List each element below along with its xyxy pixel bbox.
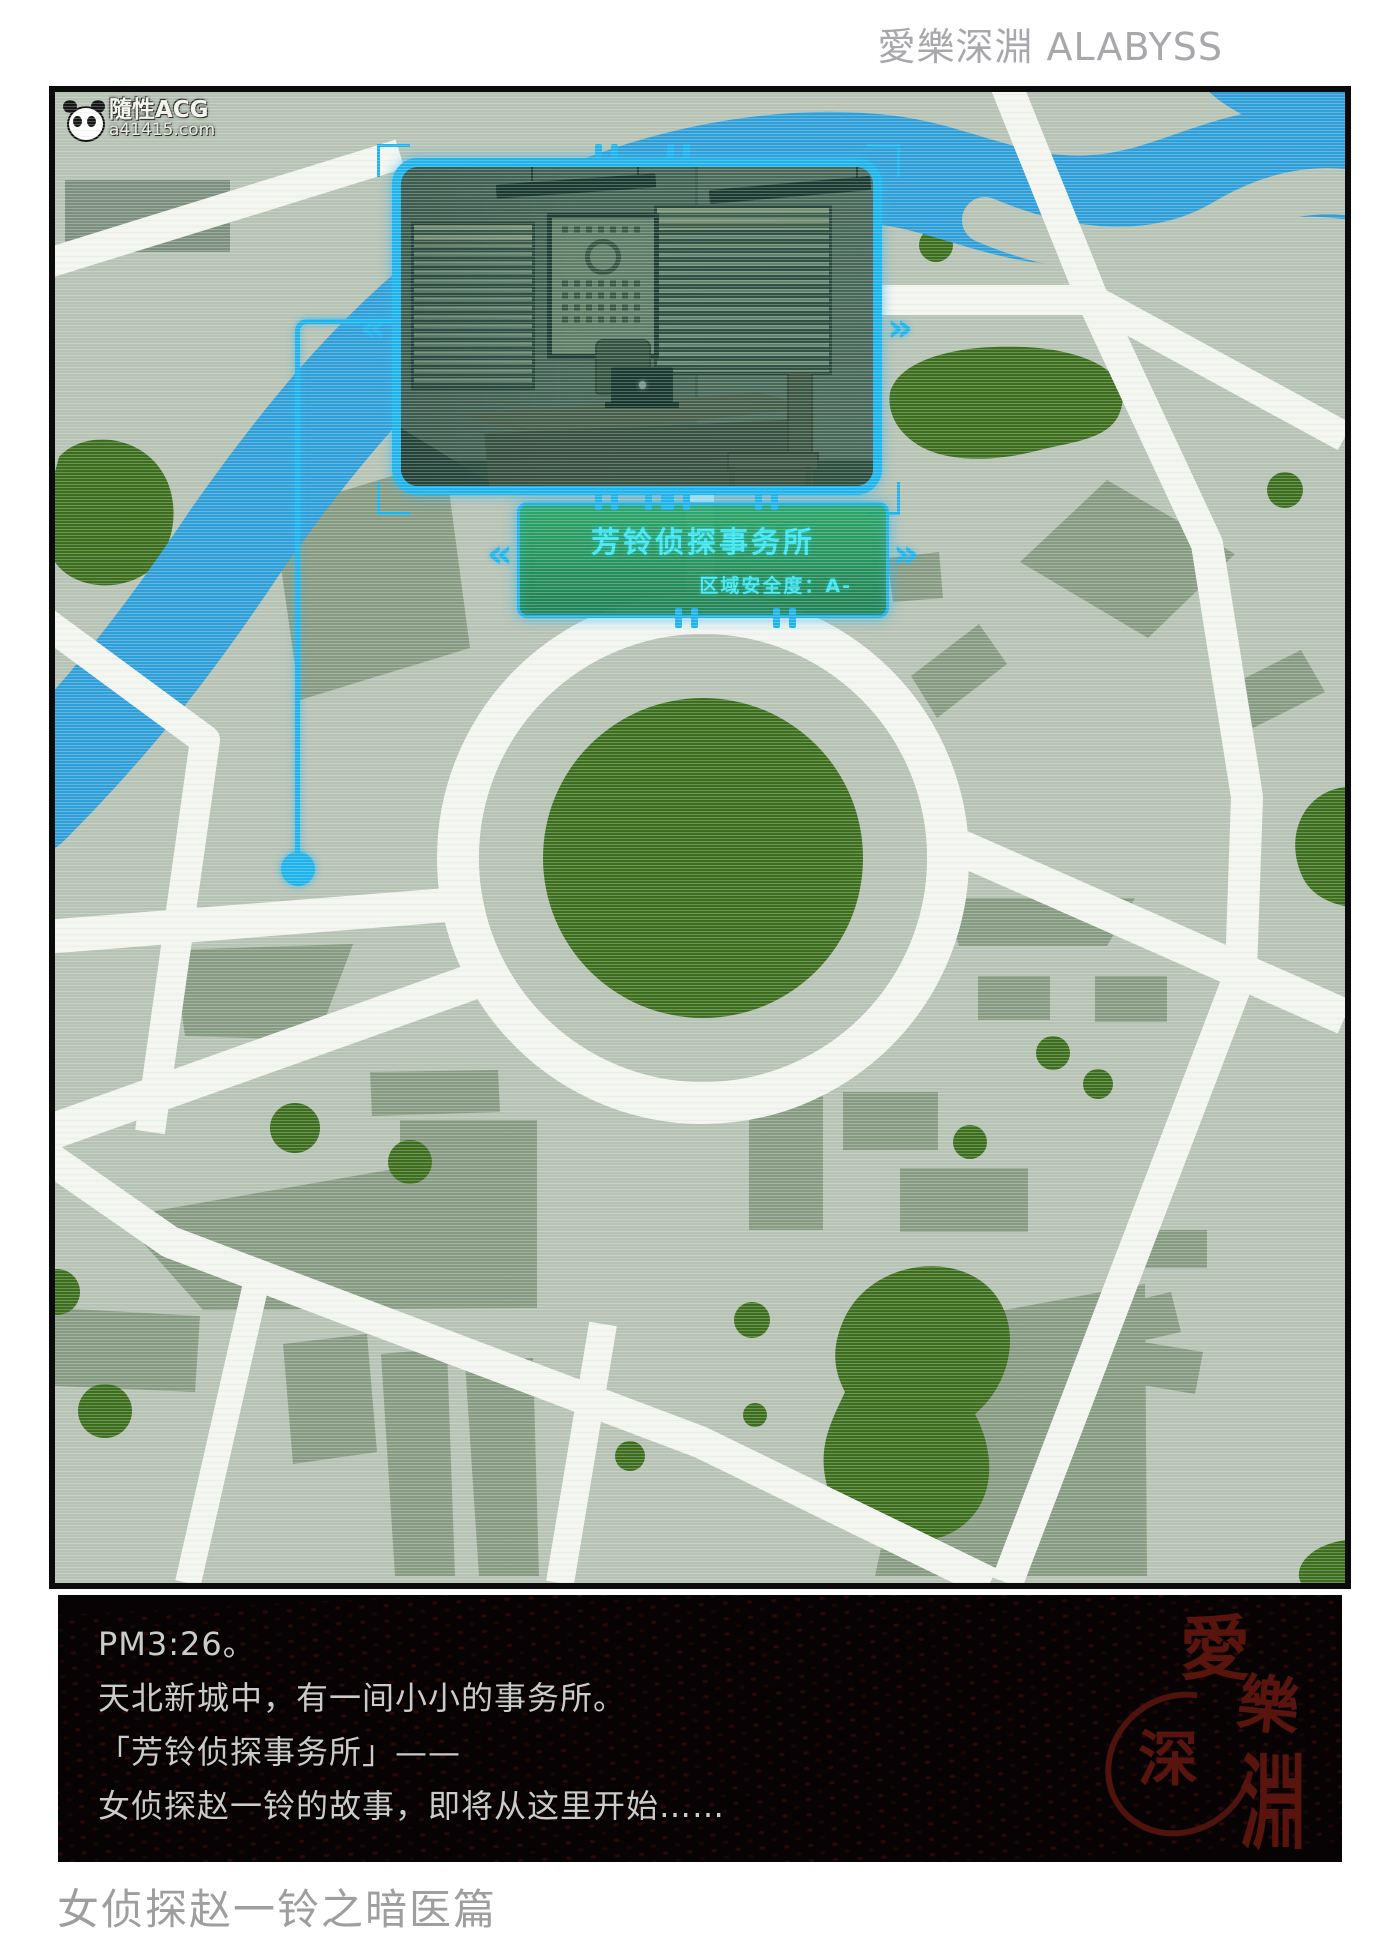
label-tick-bottom xyxy=(675,608,705,628)
alabyss-stamp-logo: 愛 樂 深 淵 xyxy=(1080,1595,1330,1862)
watermark-url: a41415.com xyxy=(109,122,215,140)
frame-tick-top xyxy=(595,144,625,164)
office-photo-preview xyxy=(392,158,882,495)
location-title: 芳铃侦探事务所 xyxy=(520,519,886,561)
narration-line: PM3:26。 xyxy=(98,1617,725,1671)
chevron-right-icon: » xyxy=(887,308,913,348)
series-title: 女侦探赵一铃之暗医篇 xyxy=(57,1876,497,1937)
stamp-char: 深 xyxy=(1138,1711,1198,1798)
safety-rating: 区域安全度：A- xyxy=(520,571,886,598)
panda-logo-icon xyxy=(63,98,107,140)
page-brand: 愛樂深淵 ALABYSS xyxy=(877,16,1223,71)
chevron-left-icon: « xyxy=(487,534,513,574)
office-photo-scene xyxy=(401,167,873,486)
chevron-right-icon: » xyxy=(893,534,919,574)
narration-line: 「芳铃侦探事务所」—— xyxy=(98,1725,725,1779)
narration-line: 女侦探赵一铃的故事，即将从这里开始…… xyxy=(98,1779,725,1833)
narration-box: 愛 樂 深 淵 PM3:26。 天北新城中，有一间小小的事务所。 「芳铃侦探事务… xyxy=(58,1595,1342,1862)
stamp-char: 淵 xyxy=(1240,1721,1306,1862)
chevron-left-icon: « xyxy=(360,308,386,348)
frame-tick-bottom xyxy=(595,490,625,510)
label-tick-top xyxy=(645,490,675,510)
narration-line: 天北新城中，有一间小小的事务所。 xyxy=(98,1671,725,1725)
map-connector-line xyxy=(295,319,400,876)
label-tick-bottom xyxy=(773,608,803,628)
watermark: 隨性ACG a41415.com xyxy=(63,98,215,140)
label-tick-top xyxy=(755,490,785,510)
location-callout: 芳铃侦探事务所 区域安全度：A- xyxy=(517,502,889,618)
location-marker-dot xyxy=(281,852,315,886)
city-map: « » 芳铃侦探事务所 区域安全度：A- « » 隨性ACG a41415.co… xyxy=(49,86,1351,1589)
watermark-name: 隨性ACG xyxy=(109,98,215,122)
frame-tick-top xyxy=(667,144,697,164)
